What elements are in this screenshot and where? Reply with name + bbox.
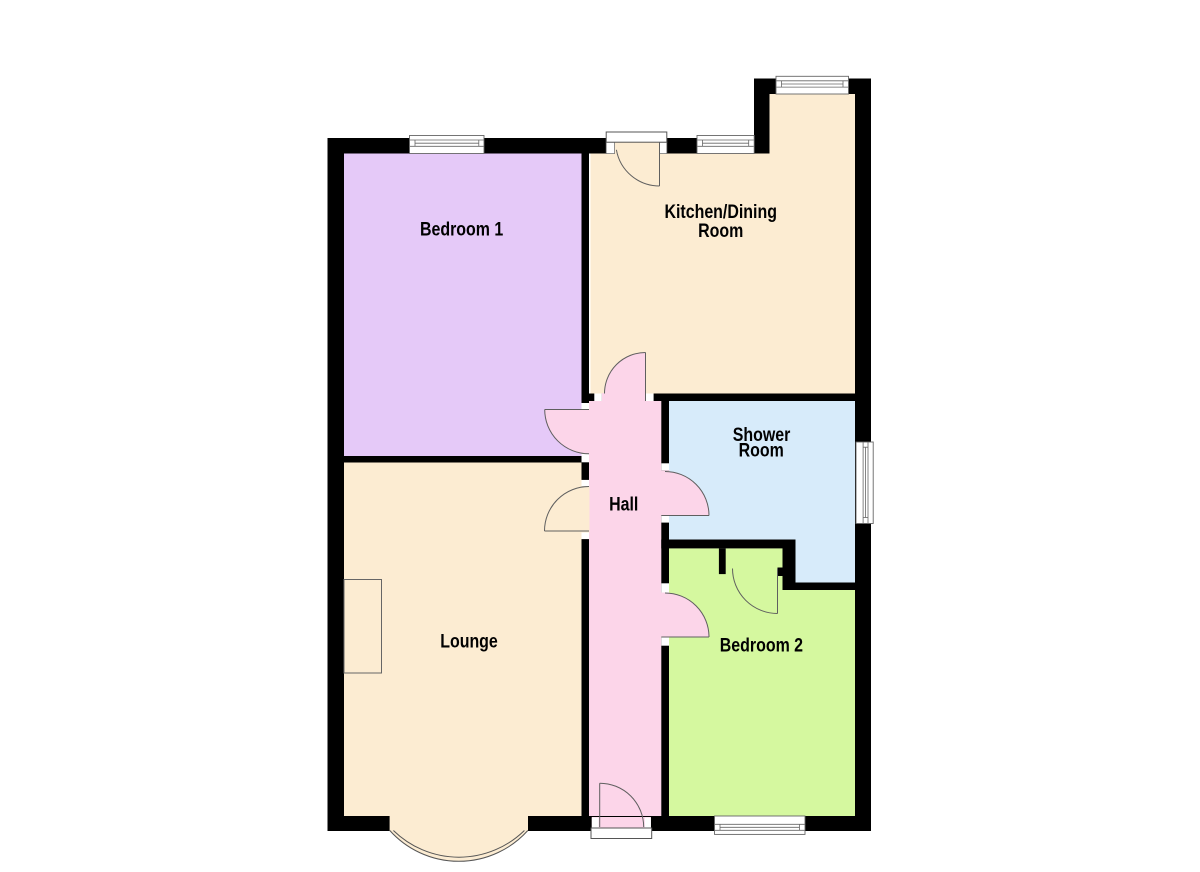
svg-text:Room: Room (698, 220, 743, 242)
svg-text:Bedroom 2: Bedroom 2 (720, 634, 804, 656)
svg-text:Lounge: Lounge (440, 630, 498, 652)
svg-text:Hall: Hall (609, 493, 638, 515)
svg-text:Room: Room (739, 439, 784, 461)
svg-text:Bedroom 1: Bedroom 1 (420, 218, 504, 240)
